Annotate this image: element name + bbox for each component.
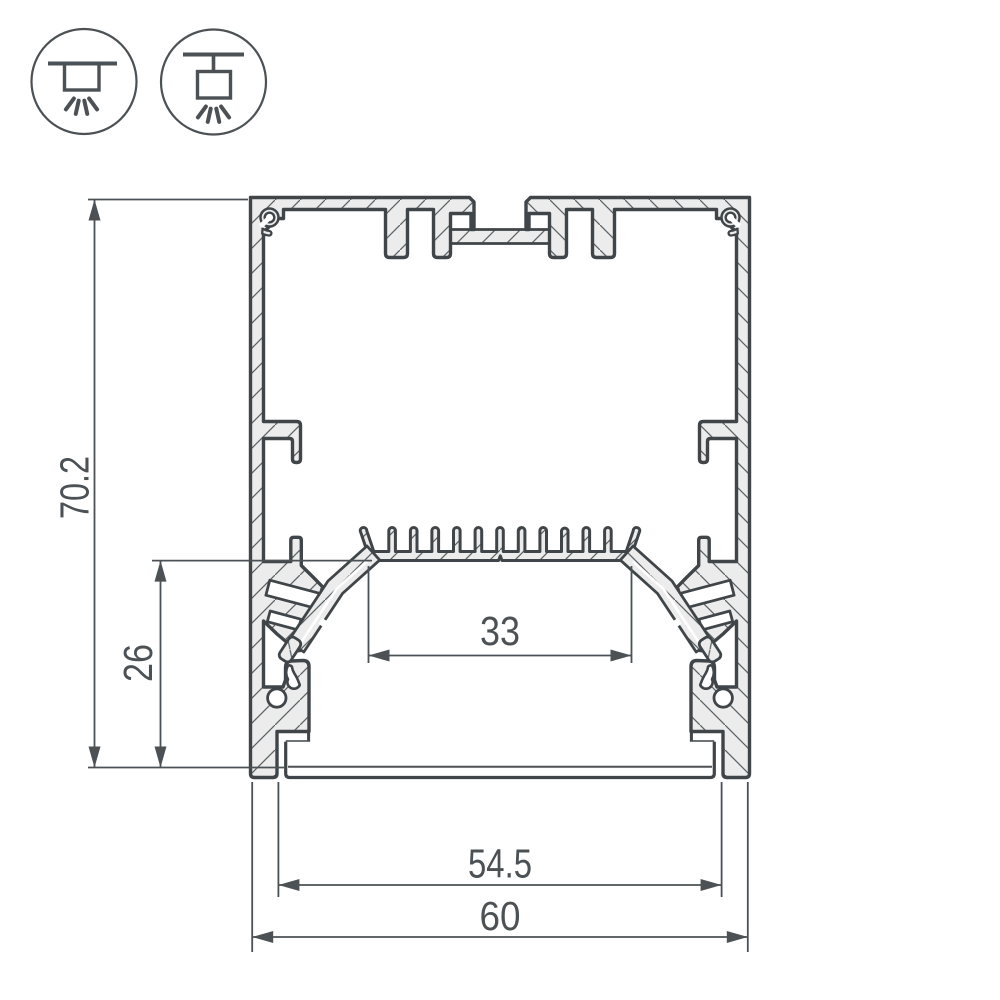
svg-text:54.5: 54.5 <box>468 841 532 887</box>
svg-text:26: 26 <box>115 644 161 682</box>
svg-text:70.2: 70.2 <box>52 456 98 519</box>
svg-text:60: 60 <box>480 893 521 939</box>
svg-text:33: 33 <box>480 608 520 654</box>
